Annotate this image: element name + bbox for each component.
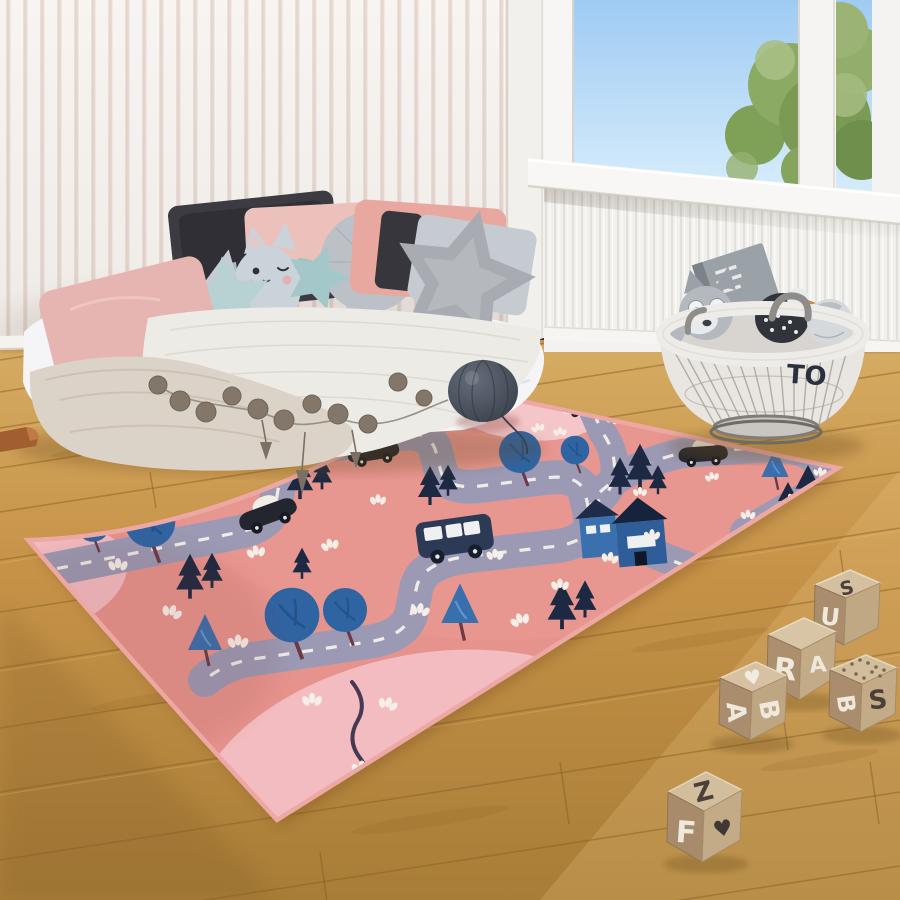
window-mullion [798, 0, 836, 194]
scene: TO S U R A ♥ A B B [0, 0, 900, 900]
kids-room-photo: TO S U R A ♥ A B B [0, 0, 900, 900]
basket-label: TO [786, 360, 828, 393]
window [528, 0, 900, 224]
window-jamb-left [544, 0, 574, 164]
block-letter-a2: A [808, 652, 828, 679]
window-jamb-right [872, 0, 900, 198]
block-letter-s: S [867, 685, 889, 717]
block-letter-a: A [720, 700, 752, 723]
block-letter-f: F [675, 815, 698, 851]
block-letter-b2: B [831, 693, 861, 715]
